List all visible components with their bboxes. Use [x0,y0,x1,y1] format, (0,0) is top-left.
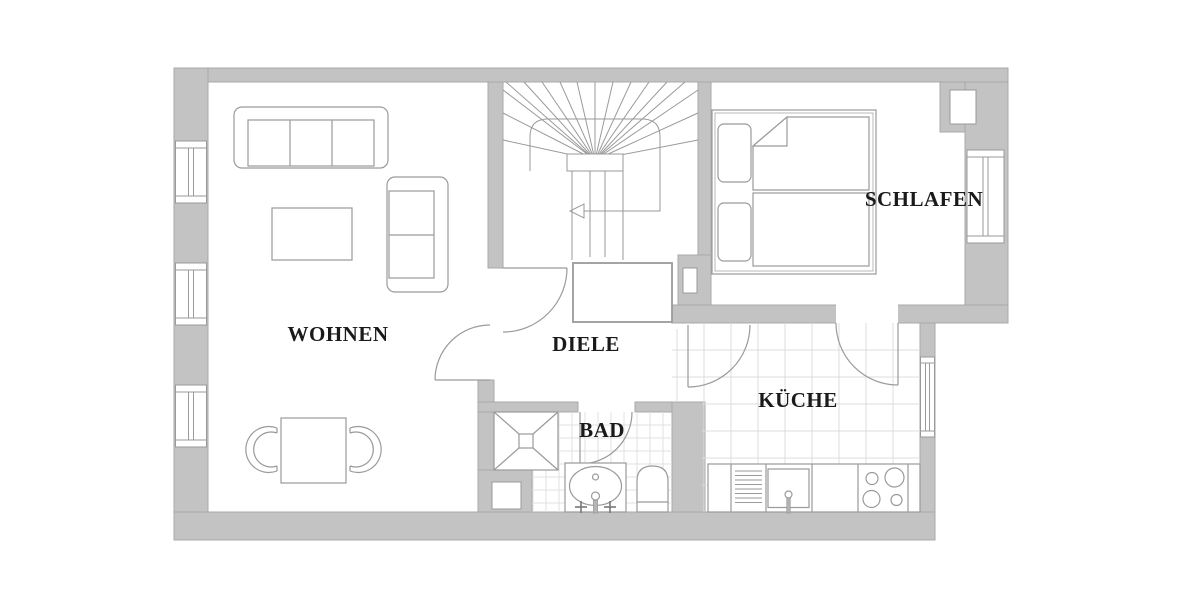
wall-wohnen-diele-upper [488,82,503,268]
toilet [637,466,668,512]
stair-treads [503,82,698,160]
hall-cabinet [573,263,672,322]
room-label-bad: BAD [579,418,625,442]
schlafen-furniture [712,110,876,274]
niche-bedroom-corner [950,90,976,124]
door-opening-schlafen [836,304,898,324]
sofa-3-seat [234,107,388,168]
kueche-fixtures [708,464,920,513]
wall-bottom [174,512,935,540]
window [176,141,207,203]
window [176,263,207,325]
mattress [753,193,869,266]
kitchen-sink [768,469,809,513]
chair [246,427,277,473]
door-swing-wohnen-diele-lower [435,325,490,380]
wall-bad-top-right [635,402,672,412]
staircase [503,82,698,260]
double-bed [712,110,876,274]
burner [885,468,904,487]
room-label-schlafen: SCHLAFEN [865,187,983,211]
wall-bad-top-left [478,402,578,412]
room-label-wohnen: WOHNEN [287,322,388,346]
window [921,357,935,437]
chair [350,427,381,473]
sink-tap [787,498,790,513]
door-swing-schlafen-kueche [836,323,898,385]
wall-bad-kueche [672,402,705,512]
floor-plan-page: WOHNEN DIELE SCHLAFEN BAD KÜCHE [0,0,1200,600]
burner [863,491,880,508]
wall-top [174,68,1008,82]
window [176,385,207,447]
wohnen-furniture [234,107,448,483]
door-swing-wohnen-diele-upper [503,268,567,332]
room-label-diele: DIELE [552,332,620,356]
room-label-kueche: KÜCHE [758,388,838,412]
coffee-table [272,208,352,260]
pillow [718,203,751,261]
shower [494,412,558,470]
washbasin-vanity [565,463,626,513]
sofa-2-seat [387,177,448,292]
shower-drain [519,434,533,448]
burner [866,473,878,485]
niche-bad-corner [492,482,521,509]
burner [891,495,902,506]
dining-table [281,418,346,483]
door-swing-diele-kueche [688,325,750,387]
floor-plan-drawing: WOHNEN DIELE SCHLAFEN BAD KÜCHE [0,0,1200,600]
stair-newel-box [567,154,623,171]
niche-hall-wall [683,268,697,293]
pillow [718,124,751,182]
